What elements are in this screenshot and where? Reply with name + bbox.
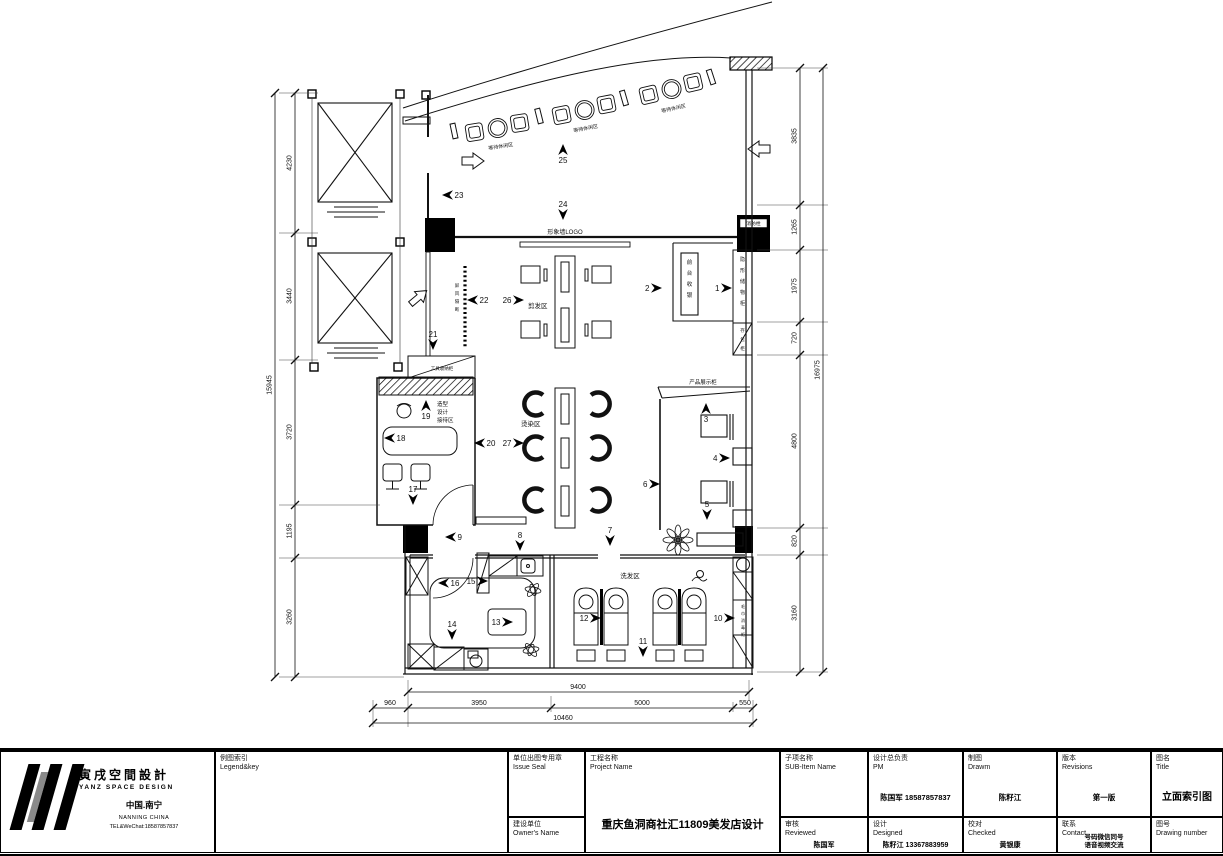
waiting-seat-group xyxy=(465,113,530,142)
dimension-value: 820 xyxy=(792,535,799,547)
vertical-area-label: 毛巾消毒柜 xyxy=(741,603,745,637)
index-marker-10: 10 xyxy=(714,613,735,623)
perm-chair xyxy=(591,437,610,460)
svg-text:14: 14 xyxy=(448,620,457,629)
designed-value: 陈籽江 13367883959 xyxy=(869,840,962,850)
shampoo-bed xyxy=(604,588,628,661)
index-marker-23: 23 xyxy=(442,190,464,200)
contact-label-cn: 联系 xyxy=(1062,821,1076,828)
perm-area xyxy=(555,388,575,528)
svg-text:16: 16 xyxy=(451,579,460,588)
shaft-walls xyxy=(312,98,400,363)
dimension-value: 9400 xyxy=(570,684,586,691)
area-label: 等待休闲区 xyxy=(661,102,687,114)
checked-value: 黄银康 xyxy=(964,840,1056,850)
sheet-title-value: 立面索引图 xyxy=(1152,788,1222,803)
svg-text:13: 13 xyxy=(492,618,501,627)
planter xyxy=(620,90,629,106)
dimension-chain: 16975 xyxy=(815,64,828,676)
owner-cell: 建设单位Owner's Name xyxy=(508,817,585,853)
area-label: 产品展示柜 xyxy=(689,378,717,386)
svg-text:22: 22 xyxy=(480,296,489,305)
vertical-area-label: 屏风隔断 xyxy=(455,283,460,313)
area-label: 工具收纳柜 xyxy=(431,365,454,372)
designed-cell: 设计Designed 陈籽江 13367883959 xyxy=(868,817,963,853)
reviewed-value: 陈国军 xyxy=(781,840,867,850)
floor-plan-drawing: 4230344037201195326015945383512651975720… xyxy=(0,0,1223,748)
waiting-seat-group xyxy=(638,72,704,105)
project-label-cn: 工程名称 xyxy=(590,755,618,762)
dimension-value: 5000 xyxy=(634,700,650,707)
contact-cell: 联系Contact 号码微信同号 语音视频交流 xyxy=(1057,817,1151,853)
reviewed-label-cn: 审核 xyxy=(785,821,799,828)
project-label-en: Project Name xyxy=(590,764,775,773)
svg-text:26: 26 xyxy=(503,296,512,305)
dimension-value: 3440 xyxy=(287,288,294,304)
perm-chair xyxy=(524,489,543,512)
planter xyxy=(450,123,458,139)
index-marker-17: 17 xyxy=(408,485,418,505)
sheet-title-label-cn: 图名 xyxy=(1156,755,1170,762)
index-marker-8: 8 xyxy=(515,531,525,551)
svg-text:20: 20 xyxy=(487,439,496,448)
dimension-value: 4800 xyxy=(792,433,799,449)
index-marker-22: 22 xyxy=(467,295,489,305)
svg-text:3: 3 xyxy=(704,415,709,424)
reviewed-cell: 审核Reviewed 陈国军 xyxy=(780,817,868,853)
dimension-value: 3160 xyxy=(792,605,799,621)
shampoo-bed xyxy=(574,588,598,661)
area-label: 消防栓 xyxy=(746,220,761,227)
svg-text:24: 24 xyxy=(559,200,568,209)
project-name-cell: 工程名称Project Name 重庆鱼洞商社汇11809美发店设计 xyxy=(585,751,780,853)
svg-text:2: 2 xyxy=(645,284,650,293)
reviewed-label-en: Reviewed xyxy=(785,830,863,839)
dimension-value: 3720 xyxy=(287,424,294,440)
dimension-value: 960 xyxy=(384,700,396,707)
svg-text:10: 10 xyxy=(714,614,723,623)
planter xyxy=(535,108,543,124)
dimension-chain: 15945 xyxy=(267,89,280,681)
sub-item-cell: 子项名称SUB-Item Name xyxy=(780,751,868,817)
dimension-chain: 38351265197572048008203160 xyxy=(792,64,805,676)
shampoo-bed xyxy=(653,588,677,661)
sub-item-label-en: SUB-Item Name xyxy=(785,764,863,773)
sheet-title-label-en: Title xyxy=(1156,764,1218,773)
index-marker-14: 14 xyxy=(447,620,457,640)
checked-label-en: Checked xyxy=(968,830,1052,839)
vertical-area-label: 隐形储物柜 xyxy=(740,256,745,307)
svg-text:1: 1 xyxy=(715,284,720,293)
cutting-area xyxy=(521,256,611,348)
drawn-label-en: Drawm xyxy=(968,764,1052,773)
index-marker-24: 24 xyxy=(558,200,568,220)
svg-text:25: 25 xyxy=(559,156,568,165)
dimension-value: 1265 xyxy=(792,219,799,235)
legend-label-cn: 例图索引 xyxy=(220,755,248,762)
dimension-value: 1195 xyxy=(287,523,294,538)
dimension-value: 4230 xyxy=(287,155,294,171)
drawing-number-label-cn: 图号 xyxy=(1156,821,1170,828)
index-marker-4: 4 xyxy=(713,453,730,463)
svg-text:5: 5 xyxy=(705,500,710,509)
drawing-number-cell: 图号Drawing number xyxy=(1151,817,1223,853)
designed-label-cn: 设计 xyxy=(873,821,887,828)
brand-tel: TEL&WeChat:18587857837 xyxy=(79,824,209,830)
issue-seal-label-en: Issue Seal xyxy=(513,764,580,773)
index-marker-27: 27 xyxy=(503,438,524,448)
svg-text:6: 6 xyxy=(643,480,648,489)
index-marker-20: 20 xyxy=(474,438,496,448)
title-block: 寅戌空間設計 YANZ SPACE DESIGN 中国.南宁 NANNING C… xyxy=(0,748,1223,856)
area-label: 洗发区 xyxy=(620,571,640,580)
drawn-label-cn: 制图 xyxy=(968,755,982,762)
brand-location-cn: 中国.南宁 xyxy=(79,799,209,811)
brand-name-cn: 寅戌空間設計 xyxy=(79,766,209,783)
contact-value: 号码微信同号 语音视频交流 xyxy=(1058,834,1150,850)
company-logo-mark xyxy=(15,764,75,832)
dimension-chain: 42303440372011953260 xyxy=(287,89,300,681)
pm-cell: 设计总负责PM 陈国军 18587857837 xyxy=(868,751,963,817)
svg-text:7: 7 xyxy=(608,526,613,535)
brand-location-en: NANNING CHINA xyxy=(79,815,209,821)
bed-divider xyxy=(678,589,681,645)
svg-text:21: 21 xyxy=(429,330,438,339)
svg-text:23: 23 xyxy=(455,191,464,200)
area-label: 剪发区 xyxy=(528,301,548,310)
dimension-value: 3835 xyxy=(792,128,799,144)
perm-chair xyxy=(524,437,543,460)
index-marker-19: 19 xyxy=(421,400,431,421)
revisions-value: 第一版 xyxy=(1058,792,1150,803)
sheet-title-cell: 图名Title 立面索引图 xyxy=(1151,751,1223,817)
area-label: 形象墙LOGO xyxy=(547,228,583,236)
pm-label-cn: 设计总负责 xyxy=(873,755,908,762)
svg-text:12: 12 xyxy=(580,614,589,623)
area-label: 造型 xyxy=(437,400,449,408)
index-marker-16: 16 xyxy=(438,578,460,588)
dimension-chain: 10460 xyxy=(369,715,757,727)
storefront-curve xyxy=(403,2,772,124)
elevator-shaft-2 xyxy=(318,253,392,358)
vertical-area-label: 前台收银 xyxy=(687,258,693,299)
designed-label-en: Designed xyxy=(873,830,958,839)
area-label: 等待休闲区 xyxy=(573,123,599,135)
index-marker-9: 9 xyxy=(445,532,463,542)
perm-chair xyxy=(591,393,610,416)
area-labels: 形象墙LOGO剪发区烫染区洗发区产品展示柜工具收纳柜消防栓造型设计接待区等待休闲… xyxy=(431,102,761,637)
pm-value: 陈国军 18587857837 xyxy=(869,792,962,803)
svg-text:27: 27 xyxy=(503,439,512,448)
perm-chair xyxy=(591,489,610,512)
dimension-chain: 9400 xyxy=(404,684,753,696)
drawn-value: 陈籽江 xyxy=(964,792,1056,803)
svg-text:19: 19 xyxy=(422,412,431,421)
index-marker-11: 11 xyxy=(638,637,648,657)
elevator-shaft-1 xyxy=(318,103,392,217)
dimension-value: 16975 xyxy=(815,360,822,380)
revisions-cell: 版本Revisions 第一版 xyxy=(1057,751,1151,817)
dimension-value: 15945 xyxy=(267,375,274,395)
svg-text:17: 17 xyxy=(409,485,418,494)
checked-cell: 校对Checked 黄银康 xyxy=(963,817,1057,853)
shampoo-bed xyxy=(682,588,706,661)
svg-text:11: 11 xyxy=(639,637,648,646)
index-marker-7: 7 xyxy=(605,526,615,546)
index-marker-26: 26 xyxy=(503,295,524,305)
generated-furniture xyxy=(450,69,716,661)
checked-label-cn: 校对 xyxy=(968,821,982,828)
area-label: 接待区 xyxy=(437,416,454,424)
pm-label-en: PM xyxy=(873,764,958,773)
drawing-sheet: { "title_block": { "logo": { "brand_cn":… xyxy=(0,0,1223,856)
contact-value-line1: 号码微信同号 xyxy=(1058,834,1150,842)
index-marker-25: 25 xyxy=(558,144,568,165)
dimension-value: 10460 xyxy=(553,715,573,722)
brand-name-en: YANZ SPACE DESIGN xyxy=(79,784,209,791)
revisions-label-en: Revisions xyxy=(1062,764,1146,773)
front-desk xyxy=(673,243,733,321)
dimension-value: 550 xyxy=(739,700,751,707)
dimension-value: 3260 xyxy=(287,609,294,625)
project-name-value: 重庆鱼洞商社汇11809美发店设计 xyxy=(586,816,779,832)
sub-item-label-cn: 子项名称 xyxy=(785,755,813,762)
index-marker-18: 18 xyxy=(384,433,406,443)
svg-text:15: 15 xyxy=(467,577,476,586)
svg-text:4: 4 xyxy=(713,454,718,463)
perm-chair xyxy=(524,393,543,416)
issue-seal-label-cn: 单位出图专用章 xyxy=(513,755,562,762)
column-markers xyxy=(308,90,430,371)
revisions-label-cn: 版本 xyxy=(1062,755,1076,762)
owner-label-en: Owner's Name xyxy=(513,830,580,839)
index-marker-13: 13 xyxy=(492,617,513,627)
index-marker-3: 3 xyxy=(701,403,711,424)
flower-decor xyxy=(663,525,693,555)
planter xyxy=(706,69,715,85)
svg-text:9: 9 xyxy=(458,533,463,542)
vertical-area-label: 存包柜 xyxy=(740,327,745,352)
legend-label-en: Legend&key xyxy=(220,764,503,773)
svg-text:18: 18 xyxy=(397,434,406,443)
drawing-number-label-en: Drawing number xyxy=(1156,830,1218,839)
area-label: 设计 xyxy=(437,408,449,416)
dimension-value: 1975 xyxy=(792,278,799,294)
floor-plan-area: 4230344037201195326015945383512651975720… xyxy=(0,0,1223,748)
company-logo-cell: 寅戌空間設計 YANZ SPACE DESIGN 中国.南宁 NANNING C… xyxy=(0,751,215,853)
dimension-value: 3950 xyxy=(471,700,487,707)
logo-wall xyxy=(455,237,737,247)
waiting-seat-group xyxy=(551,94,617,125)
area-label: 烫染区 xyxy=(521,419,541,428)
dimension-value: 720 xyxy=(792,332,799,344)
svg-text:8: 8 xyxy=(518,531,523,540)
bed-divider xyxy=(600,589,603,645)
dimension-chain: 96039505000550 xyxy=(369,700,757,712)
index-marker-2: 2 xyxy=(645,283,662,293)
contact-value-line2: 语音视频交流 xyxy=(1058,842,1150,850)
area-label: 等待休闲区 xyxy=(488,141,514,152)
issue-seal-cell: 单位出图专用章Issue Seal xyxy=(508,751,585,817)
plant-decor xyxy=(523,582,542,658)
legend-cell: 例图索引Legend&key xyxy=(215,751,508,853)
owner-label-cn: 建设单位 xyxy=(513,821,541,828)
index-marker-1: 1 xyxy=(715,283,732,293)
index-marker-6: 6 xyxy=(643,479,660,489)
drawn-cell: 制图Drawm 陈籽江 xyxy=(963,751,1057,817)
